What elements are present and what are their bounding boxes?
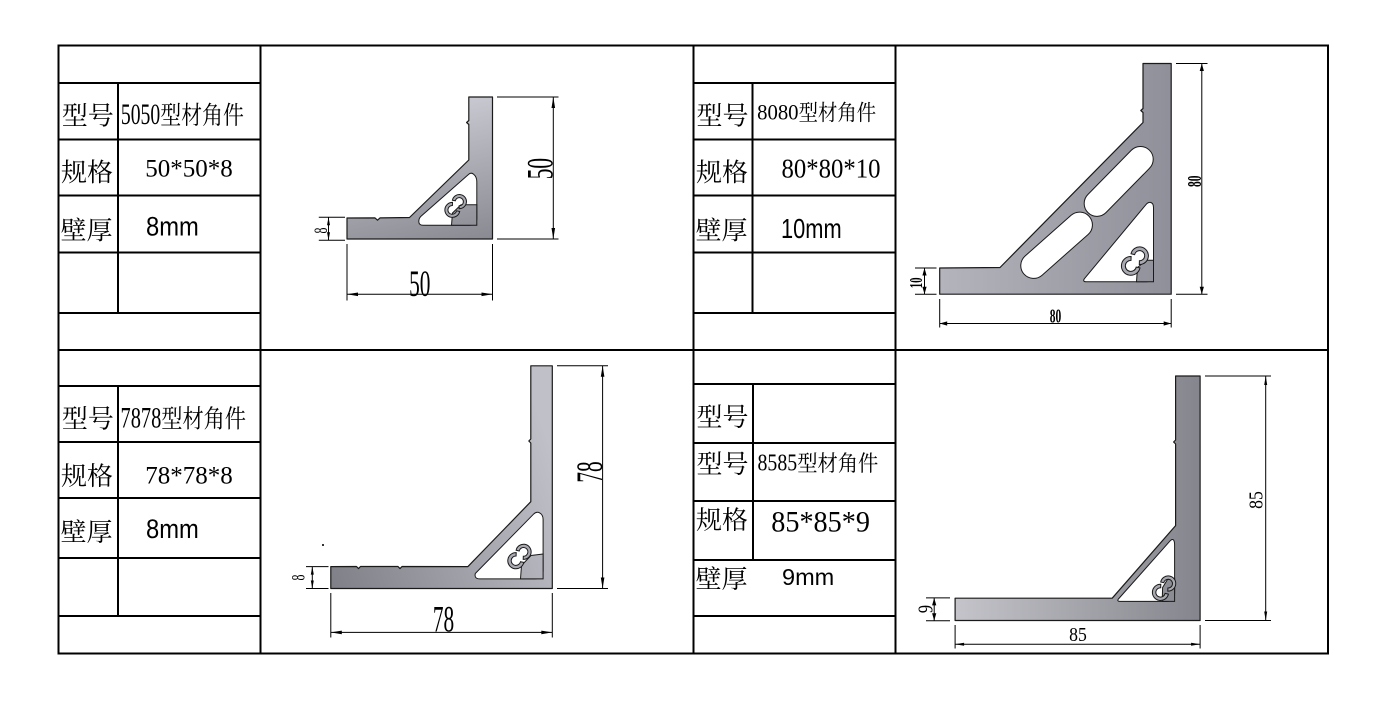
svg-text:50*50*8: 50*50*8 — [145, 156, 233, 183]
svg-text:8080: 8080 — [757, 100, 798, 125]
svg-text:8: 8 — [289, 574, 309, 580]
svg-text:8585: 8585 — [758, 449, 798, 476]
svg-text:85: 85 — [1069, 624, 1087, 646]
svg-text:8: 8 — [311, 227, 331, 233]
svg-text:78: 78 — [569, 461, 611, 482]
svg-text:9mm: 9mm — [782, 564, 834, 590]
svg-text:9: 9 — [915, 605, 939, 613]
svg-text:85: 85 — [1245, 491, 1267, 509]
svg-text:7878: 7878 — [121, 401, 162, 435]
svg-text:78*78*8: 78*78*8 — [145, 463, 233, 490]
svg-text:8mm: 8mm — [146, 212, 199, 242]
svg-text:78: 78 — [433, 598, 454, 640]
svg-text:50: 50 — [409, 263, 430, 305]
svg-text:10mm: 10mm — [781, 213, 842, 244]
svg-text:50: 50 — [519, 158, 561, 179]
svg-text:10: 10 — [907, 278, 926, 289]
svg-text:80: 80 — [1185, 175, 1206, 186]
svg-text:8mm: 8mm — [146, 515, 199, 545]
svg-text:85*85*9: 85*85*9 — [771, 506, 870, 539]
svg-text:5050: 5050 — [121, 98, 160, 131]
svg-text:80*80*10: 80*80*10 — [782, 154, 881, 184]
svg-text:80: 80 — [1050, 307, 1061, 328]
